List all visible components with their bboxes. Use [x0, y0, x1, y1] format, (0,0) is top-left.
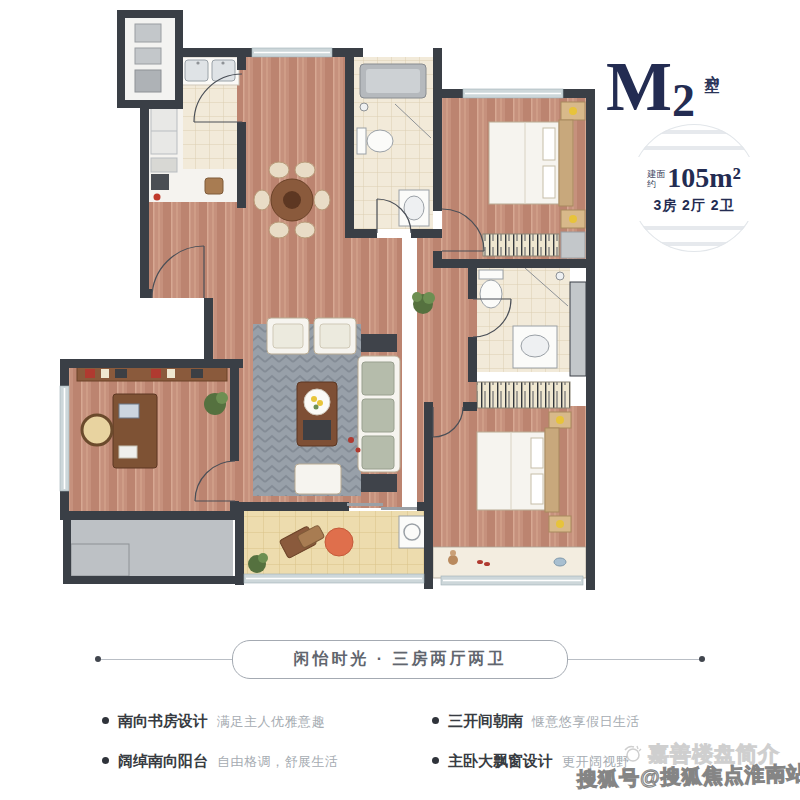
unit-title-suffix: 户型 — [702, 62, 721, 70]
floorplan — [55, 4, 605, 618]
watermark-line2: 搜狐号@搜狐焦点淮南站 — [577, 760, 800, 793]
sun-swirl-icon — [622, 743, 644, 765]
area-value: 105m² — [667, 162, 741, 194]
unit-title-number: 2 — [672, 78, 695, 124]
living-room — [253, 318, 400, 496]
bullet-icon — [102, 757, 109, 764]
feature-item: 阔绰南向阳台 自由格调，舒展生活 — [102, 752, 339, 771]
slogan-banner: 闲怡时光 · 三房两厅两卫 — [95, 641, 705, 677]
banner-right-dot — [699, 656, 705, 662]
area-prefix: 建面 约 — [647, 170, 665, 190]
feature-item: 南向书房设计 满足主人优雅意趣 — [102, 712, 339, 731]
slogan-pill: 闲怡时光 · 三房两厅两卫 — [232, 640, 567, 679]
area-row: 建面 约 105m² — [647, 162, 741, 194]
bullet-icon — [102, 717, 109, 724]
bullet-icon — [432, 717, 439, 724]
bullet-icon — [432, 757, 439, 764]
bedroom-1 — [483, 102, 585, 258]
banner-left-line — [101, 659, 232, 660]
unit-title: M 2 户型 — [606, 52, 721, 124]
area-badge: 建面 约 105m² 3房 2厅 2卫 — [630, 124, 758, 252]
feature-item: 三开间朝南 惬意悠享假日生活 — [432, 712, 640, 731]
unit-title-letter: M — [606, 52, 672, 122]
feature-column-left: 南向书房设计 满足主人优雅意趣 阔绰南向阳台 自由格调，舒展生活 — [102, 712, 339, 792]
banner-right-line — [568, 659, 699, 660]
room-layout: 3房 2厅 2卫 — [653, 197, 734, 215]
